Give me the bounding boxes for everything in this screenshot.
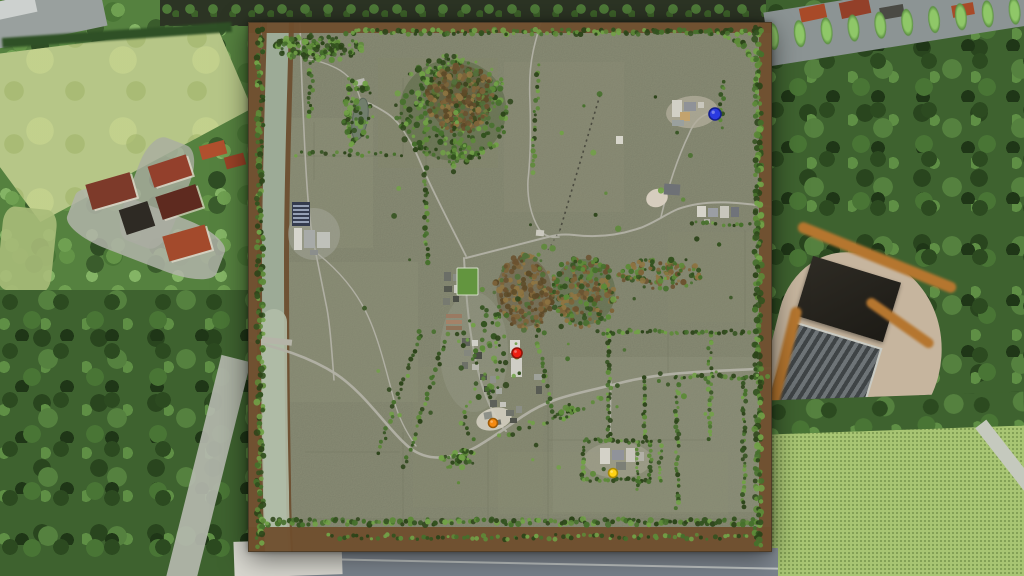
tree [536, 272, 539, 275]
tree [414, 101, 418, 105]
tree [707, 402, 712, 407]
tree [415, 90, 421, 96]
tree [581, 267, 586, 272]
tree [434, 66, 437, 69]
orange-marker-highlight [490, 420, 493, 423]
tree [515, 29, 519, 33]
tree [754, 377, 757, 380]
tree [747, 330, 751, 334]
tree [681, 534, 686, 539]
tree [754, 131, 761, 138]
tree [368, 151, 371, 154]
tree [422, 215, 427, 220]
tree [517, 426, 522, 431]
tree [486, 112, 489, 115]
tree [451, 169, 456, 174]
tree [261, 305, 265, 309]
tree [710, 331, 714, 335]
tree [715, 370, 718, 373]
tree [485, 387, 490, 392]
tree [525, 535, 529, 539]
tree [568, 403, 571, 406]
tree [709, 390, 713, 394]
tree [581, 460, 586, 465]
map-building [472, 364, 479, 370]
tree [265, 521, 269, 525]
tree [453, 97, 457, 101]
tree [752, 139, 757, 144]
tree [294, 517, 300, 523]
tree [434, 148, 438, 152]
tree [592, 286, 597, 291]
tree [464, 151, 468, 155]
tree [472, 437, 476, 441]
tree [424, 243, 427, 246]
tree [457, 481, 460, 484]
tree [547, 392, 551, 396]
tree [756, 42, 761, 47]
tree [465, 126, 470, 131]
tree [674, 266, 678, 270]
tree [474, 536, 479, 541]
tree [610, 296, 616, 302]
tree [765, 374, 770, 379]
tree [600, 273, 603, 276]
tree [437, 139, 443, 145]
tree [476, 394, 482, 400]
tree [308, 517, 312, 521]
tree [501, 351, 506, 356]
tree [489, 518, 494, 523]
tree [619, 477, 622, 480]
tree [457, 76, 461, 80]
tree [257, 357, 261, 361]
tree [398, 536, 403, 541]
tree [633, 297, 636, 300]
tree [642, 415, 647, 420]
tree [323, 152, 327, 156]
tree [347, 77, 350, 80]
tree [584, 522, 590, 528]
map-overlay[interactable] [248, 22, 772, 552]
tree [368, 106, 371, 109]
tree [428, 151, 431, 154]
tree [599, 278, 605, 284]
tree [733, 534, 737, 538]
tree [407, 129, 412, 134]
tree [611, 31, 616, 36]
tree [580, 279, 584, 283]
tree [535, 85, 539, 89]
tree [689, 537, 694, 542]
tree [606, 408, 609, 411]
tree [714, 222, 718, 226]
tree [531, 148, 536, 153]
tree [659, 29, 664, 34]
tree [522, 262, 525, 265]
tree [512, 320, 516, 324]
tree [341, 520, 345, 524]
tree [743, 477, 746, 480]
tree [524, 302, 527, 305]
tree [334, 517, 339, 522]
tree [600, 298, 603, 301]
tree [493, 313, 498, 318]
tree [559, 32, 562, 35]
tree [487, 72, 492, 77]
tree [729, 329, 733, 333]
tree [491, 101, 494, 104]
map-building [534, 374, 542, 380]
tree [537, 349, 542, 354]
tree [547, 536, 552, 541]
tree [352, 128, 357, 133]
tree [538, 266, 542, 270]
tree [399, 381, 404, 386]
tree [475, 361, 478, 364]
tree [567, 31, 571, 35]
tree [532, 154, 537, 159]
tree [482, 125, 488, 131]
tree [503, 278, 508, 283]
tree [540, 259, 543, 262]
tree [412, 127, 415, 130]
tree [443, 340, 447, 344]
tree [301, 52, 306, 57]
tree [442, 519, 448, 525]
tree [391, 415, 395, 419]
tree [661, 330, 664, 333]
tree [654, 522, 659, 527]
tree [659, 479, 663, 483]
tree [758, 519, 764, 525]
tree [757, 140, 763, 146]
tree [254, 270, 261, 277]
tree [542, 422, 546, 426]
tree [535, 335, 538, 338]
tree [739, 223, 744, 228]
tree [688, 375, 692, 379]
tree [570, 411, 573, 414]
map-building [500, 402, 506, 407]
tree [639, 262, 645, 268]
tree [416, 424, 419, 427]
tree [469, 400, 472, 403]
tree [307, 96, 311, 100]
tree [354, 117, 358, 121]
tree [677, 280, 680, 283]
tree [400, 154, 403, 157]
tree [606, 427, 610, 431]
tree [254, 429, 261, 436]
tree [532, 159, 535, 162]
tree [461, 77, 465, 81]
tree [733, 331, 738, 336]
tree [409, 89, 414, 94]
tree [453, 140, 458, 145]
tree [440, 60, 445, 65]
tree [348, 50, 352, 54]
tree [404, 455, 408, 459]
orange-marker[interactable] [489, 419, 498, 428]
tree [559, 409, 565, 415]
tree [441, 71, 446, 76]
tree [511, 305, 515, 309]
blue-marker[interactable] [709, 108, 721, 120]
tree [709, 357, 712, 360]
tree [374, 152, 377, 155]
tree [647, 523, 652, 528]
tree [556, 309, 560, 313]
tree [466, 458, 469, 461]
tree [747, 54, 751, 58]
tree [423, 105, 427, 109]
tree [499, 309, 502, 312]
tree [485, 121, 489, 125]
tree [638, 269, 644, 275]
tree [423, 120, 428, 125]
tree [489, 96, 492, 99]
tree [259, 99, 263, 103]
tree [500, 302, 503, 305]
tree [709, 382, 713, 386]
tree [395, 90, 401, 96]
tree [421, 535, 426, 540]
tree [462, 89, 468, 95]
tree [400, 112, 403, 115]
tree [477, 153, 480, 156]
tree [754, 541, 759, 546]
tree [473, 348, 478, 353]
tree [400, 125, 406, 131]
tree [651, 287, 654, 290]
map-canvas [248, 22, 772, 552]
tree [573, 260, 577, 264]
tree [594, 33, 597, 36]
map-building [697, 206, 706, 217]
tree [498, 344, 501, 347]
tree [753, 157, 759, 163]
tree [759, 111, 764, 116]
tree [350, 79, 355, 84]
tree [599, 396, 604, 401]
tree [542, 374, 547, 379]
tree [396, 186, 401, 191]
tree [441, 536, 445, 540]
tree [495, 368, 499, 372]
tree [260, 49, 265, 54]
tree [504, 292, 510, 298]
tree [257, 414, 263, 420]
tree [637, 443, 641, 447]
tree [461, 331, 466, 336]
tree [260, 271, 265, 276]
tree [505, 537, 509, 541]
tree [258, 172, 264, 178]
tree [699, 373, 704, 378]
tree [452, 79, 458, 85]
tree [587, 296, 593, 302]
tree [694, 236, 699, 241]
tree [311, 79, 315, 83]
tree [413, 147, 418, 152]
tree [636, 329, 641, 334]
tree [400, 388, 403, 391]
tree [699, 536, 703, 540]
tree [581, 452, 585, 456]
tree [256, 121, 262, 127]
tree [722, 87, 725, 90]
tree [449, 117, 454, 122]
tree [540, 321, 543, 324]
tree [742, 432, 746, 436]
tree [710, 351, 713, 354]
tree [707, 408, 711, 412]
tree [481, 101, 486, 106]
tree [580, 311, 584, 315]
tree [546, 421, 549, 424]
tree [423, 234, 427, 238]
tree [689, 273, 694, 278]
tree [257, 334, 262, 339]
tree [309, 74, 313, 78]
tree [756, 513, 761, 518]
tree [535, 324, 538, 327]
tree [531, 266, 537, 272]
tree [312, 47, 316, 51]
tree [459, 464, 465, 470]
tree [534, 443, 539, 448]
tree [462, 520, 466, 524]
tree [418, 97, 422, 101]
tree [717, 242, 721, 246]
tree [668, 264, 671, 267]
tree [635, 448, 639, 452]
tree [287, 43, 293, 49]
tree [437, 352, 441, 356]
tree [350, 121, 354, 125]
tree [541, 365, 544, 368]
tree [428, 385, 432, 389]
tree [698, 29, 703, 34]
tree [259, 27, 265, 33]
tree [647, 535, 650, 538]
tree [592, 267, 598, 273]
tree [546, 400, 550, 404]
tree [742, 43, 747, 48]
tree [326, 533, 330, 537]
tree [756, 269, 760, 273]
tree [310, 150, 315, 155]
tree [596, 320, 601, 325]
tree [478, 156, 481, 159]
tree [654, 95, 657, 98]
tree [497, 433, 501, 437]
tree [759, 478, 765, 484]
tree [744, 375, 748, 379]
tree [673, 424, 678, 429]
tree [590, 150, 596, 156]
tree [279, 51, 285, 57]
tree [597, 91, 603, 97]
tree [521, 277, 526, 282]
tree [549, 518, 554, 523]
tree [410, 536, 414, 540]
tree [440, 150, 446, 156]
tree [757, 69, 761, 73]
tree [487, 392, 491, 396]
red-marker[interactable] [512, 348, 522, 358]
tree [578, 300, 583, 305]
tree [604, 29, 609, 34]
tree [755, 90, 759, 94]
tree [740, 439, 744, 443]
tree [654, 536, 659, 541]
tree [443, 138, 446, 141]
tree [455, 332, 459, 336]
tree [741, 396, 745, 400]
tree [718, 92, 723, 97]
tree [754, 201, 759, 206]
map-building [506, 410, 514, 416]
tree [542, 379, 546, 383]
tree [757, 472, 762, 477]
tree [532, 118, 537, 123]
tree [658, 452, 661, 455]
tree [607, 289, 611, 293]
tree [759, 366, 764, 371]
tree [259, 220, 263, 224]
tree [356, 152, 360, 156]
tree [398, 116, 401, 119]
tree [473, 80, 476, 83]
tree [433, 77, 436, 80]
tree [647, 465, 652, 470]
tree [753, 479, 758, 484]
tree [539, 302, 544, 307]
tree [258, 372, 263, 377]
tree [481, 115, 485, 119]
yellow-marker[interactable] [609, 469, 618, 478]
tree [511, 289, 517, 295]
tree [416, 538, 419, 541]
tree [523, 30, 527, 34]
tree [343, 52, 346, 55]
tree [480, 305, 485, 310]
tree [491, 389, 495, 393]
tree [432, 153, 436, 157]
tree [492, 281, 497, 286]
tree [405, 460, 409, 464]
tree [340, 53, 343, 56]
tree [753, 94, 758, 99]
tree [422, 179, 426, 183]
tree [443, 91, 449, 97]
tree [429, 102, 434, 107]
tree [424, 205, 428, 209]
tree [576, 534, 580, 538]
tree [260, 408, 265, 413]
tree [679, 269, 682, 272]
tree [472, 94, 476, 98]
tree [601, 264, 606, 269]
tree [255, 293, 261, 299]
map-building [310, 250, 318, 255]
map-building [731, 207, 739, 217]
tree [748, 32, 752, 36]
tree [457, 140, 463, 146]
tree [622, 279, 626, 283]
